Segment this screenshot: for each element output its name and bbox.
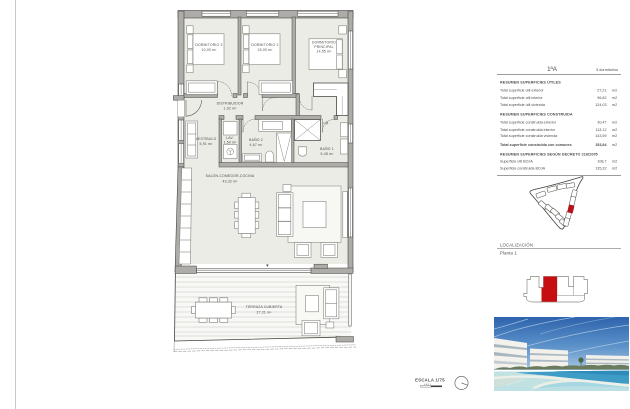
svg-text:m2: m2: [612, 159, 617, 163]
svg-text:96,82: 96,82: [597, 96, 606, 100]
svg-text:m2: m2: [612, 134, 617, 138]
svg-text:4,67 m²: 4,67 m²: [250, 143, 264, 147]
svg-text:Total superficie útil interior: Total superficie útil interior: [500, 96, 543, 100]
svg-text:Planta 1: Planta 1: [500, 251, 517, 256]
svg-text:Total superficie útil vivienda: Total superficie útil vivienda: [500, 103, 546, 107]
svg-text:14,55 m²: 14,55 m²: [317, 50, 333, 54]
svg-text:5,48 m²: 5,48 m²: [321, 152, 335, 156]
svg-text:m2: m2: [612, 128, 617, 132]
svg-text:15,00 m²: 15,00 m²: [258, 48, 274, 52]
svg-text:TERRAZA CUBIERTA: TERRAZA CUBIERTA: [246, 305, 283, 309]
svg-text:Total superficie construida ex: Total superficie construida exterior: [500, 121, 557, 125]
svg-text:DORMITORIO: DORMITORIO: [312, 41, 336, 45]
svg-text:BAÑO 2: BAÑO 2: [249, 137, 263, 142]
svg-text:108,7: 108,7: [597, 159, 606, 163]
svg-text:LOCALIZACIÓN: LOCALIZACIÓN: [500, 243, 533, 248]
svg-text:RESUMEN SUPERFICIES SEGÚN DECR: RESUMEN SUPERFICIES SEGÚN DECRETO 218/20…: [500, 152, 598, 157]
svg-text:10,00 m²: 10,00 m²: [202, 48, 218, 52]
svg-text:Total superficie construida vi: Total superficie construida vivienda: [500, 134, 558, 138]
svg-text:135,32: 135,32: [595, 167, 606, 171]
svg-text:SALÓN-COMEDOR-COCINA: SALÓN-COMEDOR-COCINA: [206, 173, 255, 178]
svg-text:DORMITORIO 2: DORMITORIO 2: [251, 43, 278, 47]
svg-text:m2: m2: [612, 96, 617, 100]
svg-text:124,03: 124,03: [595, 103, 606, 107]
svg-text:LAV.: LAV.: [226, 136, 234, 140]
svg-text:143,59: 143,59: [595, 134, 606, 138]
svg-text:DORMITORIO 3: DORMITORIO 3: [195, 43, 222, 47]
svg-text:Total superficie construida co: Total superficie construida con comunes: [500, 143, 572, 147]
svg-text:Total superficie útil exterior: Total superficie útil exterior: [500, 89, 544, 93]
svg-text:27,21 m²: 27,21 m²: [257, 311, 273, 315]
svg-text:113,12: 113,12: [595, 128, 606, 132]
svg-text:5,91 m²: 5,91 m²: [200, 142, 214, 146]
svg-text:m2: m2: [612, 143, 617, 147]
svg-text:m2: m2: [612, 167, 617, 171]
svg-text:BAÑO 1: BAÑO 1: [320, 146, 334, 151]
svg-text:RESUMEN SUPERFICIES ÚTILES: RESUMEN SUPERFICIES ÚTILES: [500, 80, 561, 85]
svg-text:27,21: 27,21: [597, 89, 606, 93]
svg-text:Superficie construida BOJA: Superficie construida BOJA: [500, 167, 546, 171]
svg-text:m2: m2: [612, 103, 617, 107]
svg-text:m2: m2: [612, 121, 617, 125]
svg-text:43,32 m²: 43,32 m²: [223, 180, 239, 184]
svg-text:m2: m2: [612, 89, 617, 93]
svg-text:RESUMEN SUPERFICIES CONSTRUIDA: RESUMEN SUPERFICIES CONSTRUIDA: [500, 113, 573, 117]
svg-text:PRINCIPAL: PRINCIPAL: [314, 45, 333, 49]
svg-text:1,50 m²: 1,50 m²: [224, 141, 238, 145]
svg-text:30,47: 30,47: [597, 121, 606, 125]
svg-text:1,92 m²: 1,92 m²: [224, 107, 238, 111]
svg-text:VESTÍBULO: VESTÍBULO: [196, 137, 217, 141]
svg-text:153,84: 153,84: [595, 143, 607, 147]
svg-text:3 dormitorios: 3 dormitorios: [596, 68, 618, 72]
svg-text:DISTRIBUIDOR: DISTRIBUIDOR: [217, 102, 244, 106]
svg-text:1ªA: 1ªA: [547, 66, 558, 73]
svg-text:Total superficie construida in: Total superficie construida interior: [500, 128, 556, 132]
svg-text:ESCALA 1/75: ESCALA 1/75: [415, 378, 445, 383]
svg-text:Superficie útil BOJA: Superficie útil BOJA: [500, 159, 533, 163]
